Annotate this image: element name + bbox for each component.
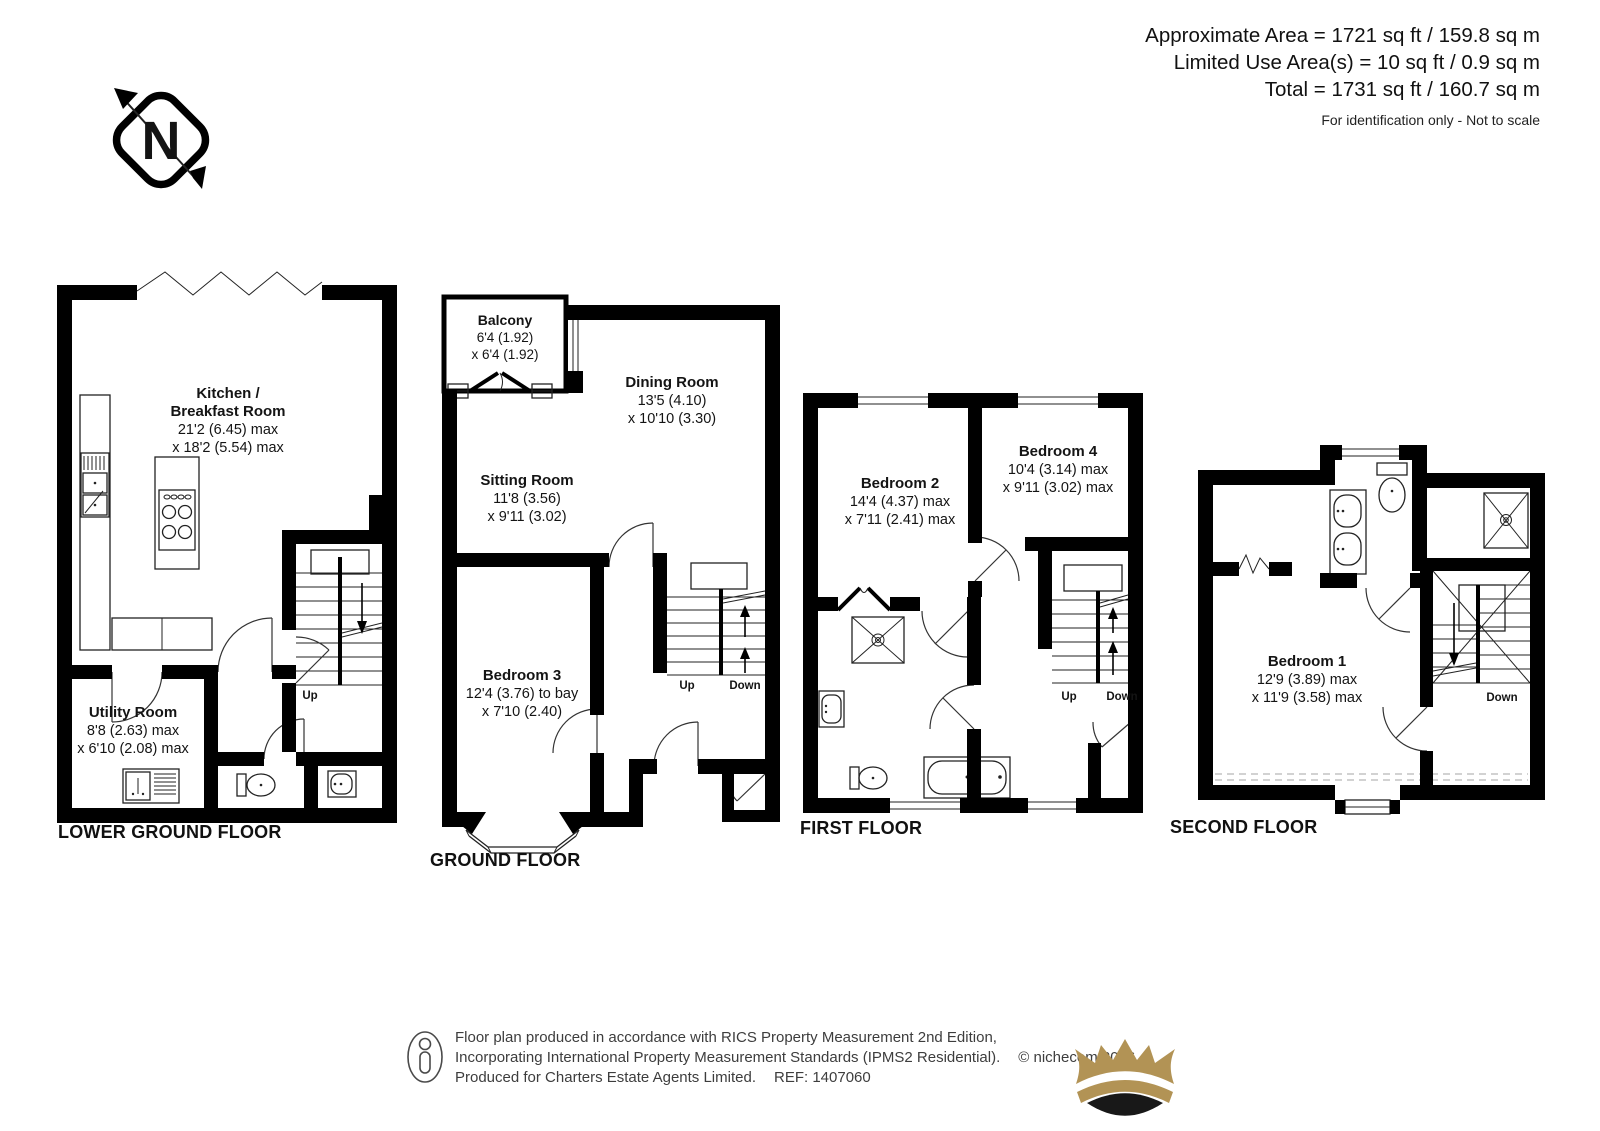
footer-line-2: Incorporating International Property Mea… — [455, 1048, 1139, 1068]
sf-fixtures — [1239, 449, 1530, 814]
area-summary: Approximate Area = 1721 sq ft / 159.8 sq… — [1145, 22, 1540, 134]
room-dim: x 6'4 (1.92) — [471, 347, 538, 362]
room-dim: x 9'11 (3.02) max — [1003, 480, 1114, 496]
floorplan-page: Approximate Area = 1721 sq ft / 159.8 sq… — [0, 0, 1600, 1131]
stairs-up-label: Up — [679, 680, 694, 692]
room-dim: x 6'10 (2.08) max — [77, 741, 189, 757]
room-dim: 12'4 (3.76) to bay — [466, 686, 579, 702]
north-compass-icon: N — [105, 76, 217, 202]
room-label: Bedroom 1 — [1268, 653, 1346, 670]
stairs-down-label: Down — [729, 680, 760, 692]
scale-disclaimer: For identification only - Not to scale — [1145, 107, 1540, 134]
lgf-room-labels: Kitchen / Breakfast Room 21'2 (6.45) max… — [77, 385, 317, 757]
room-label: Sitting Room — [480, 472, 573, 489]
room-dim: x 10'10 (3.30) — [628, 411, 716, 427]
room-dim: x 18'2 (5.54) max — [172, 440, 284, 456]
room-label: Kitchen / — [196, 385, 260, 402]
stairs-up-label: Up — [1061, 691, 1076, 703]
room-label: Balcony — [478, 312, 533, 328]
first-floor-plan: Bedroom 2 14'4 (4.37) max x 7'11 (2.41) … — [800, 385, 1145, 835]
room-label: Bedroom 4 — [1019, 443, 1098, 460]
room-dim: x 7'10 (2.40) — [482, 704, 562, 720]
ground-floor-title: GROUND FLOOR — [430, 850, 580, 871]
room-dim: 10'4 (3.14) max — [1008, 462, 1109, 478]
lower-ground-floor-plan: Kitchen / Breakfast Room 21'2 (6.45) max… — [57, 285, 397, 825]
second-floor-title: SECOND FLOOR — [1170, 817, 1317, 838]
room-label: Breakfast Room — [170, 403, 285, 420]
sf-walls — [1198, 445, 1545, 814]
room-dim: x 11'9 (3.58) max — [1252, 690, 1363, 706]
stairs-down-label: Down — [1486, 692, 1517, 704]
room-dim: 13'5 (4.10) — [638, 393, 707, 409]
footer-standards: Incorporating International Property Mea… — [455, 1049, 1000, 1066]
footer-line-3: Produced for Charters Estate Agents Limi… — [455, 1068, 1139, 1088]
room-dim: x 7'11 (2.41) max — [845, 512, 956, 528]
ground-floor-plan: Balcony 6'4 (1.92) x 6'4 (1.92) Dining R… — [432, 285, 788, 865]
room-dim: 14'4 (4.37) max — [850, 494, 951, 510]
area-line-approximate: Approximate Area = 1721 sq ft / 159.8 sq… — [1145, 22, 1540, 49]
wall-break-line — [137, 272, 322, 295]
arrow-fletching — [190, 166, 206, 189]
room-label: Bedroom 3 — [483, 667, 561, 684]
room-dim: x 9'11 (3.02) — [487, 509, 566, 525]
footer-line-1: Floor plan produced in accordance with R… — [455, 1028, 1139, 1048]
first-floor-title: FIRST FLOOR — [800, 818, 922, 839]
stairs-down-label: Down — [1106, 691, 1137, 703]
room-label: Bedroom 2 — [861, 475, 939, 492]
room-label: Utility Room — [89, 704, 177, 721]
reference-number: REF: 1407060 — [774, 1069, 871, 1086]
room-label: Dining Room — [625, 374, 718, 391]
room-dim: 12'9 (3.89) max — [1257, 672, 1358, 688]
second-floor-plan: Bedroom 1 12'9 (3.89) max x 11'9 (3.58) … — [1172, 433, 1547, 823]
stairs-up-label: Up — [302, 690, 317, 702]
room-dim: 21'2 (6.45) max — [178, 422, 279, 438]
ff-room-labels: Bedroom 2 14'4 (4.37) max x 7'11 (2.41) … — [845, 443, 1138, 703]
area-line-total: Total = 1731 sq ft / 160.7 sq m — [1145, 76, 1540, 103]
sf-doors — [1366, 588, 1427, 751]
person-scale-icon — [406, 1030, 446, 1086]
footer-disclaimer: Floor plan produced in accordance with R… — [455, 1028, 1139, 1088]
room-dim: 8'8 (2.63) max — [87, 723, 180, 739]
produced-for: Produced for Charters Estate Agents Limi… — [455, 1069, 756, 1086]
lower-ground-floor-title: LOWER GROUND FLOOR — [58, 822, 282, 843]
north-letter: N — [142, 111, 181, 171]
room-dim: 6'4 (1.92) — [477, 330, 534, 345]
room-dim: 11'8 (3.56) — [493, 491, 561, 507]
north-arrowhead — [114, 88, 138, 109]
crown-logo — [1068, 1034, 1183, 1114]
area-line-limited: Limited Use Area(s) = 10 sq ft / 0.9 sq … — [1145, 49, 1540, 76]
